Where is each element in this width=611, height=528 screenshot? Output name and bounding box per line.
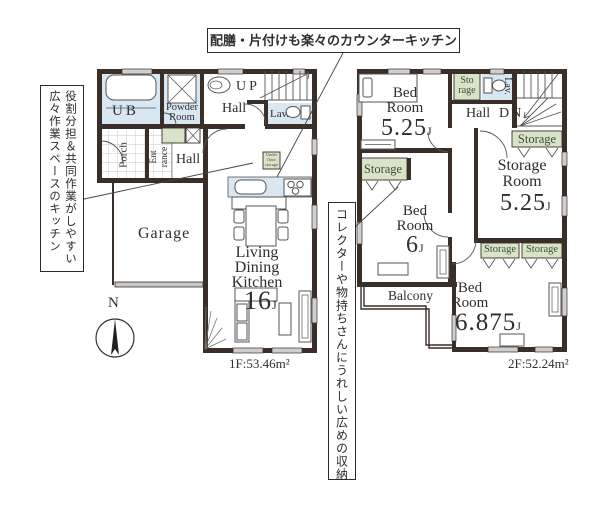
label-up: UP xyxy=(236,80,260,94)
stairs-down xyxy=(517,71,562,126)
callout-counter-kitchen-text: 配膳・片付けも楽々のカウンターキッチン xyxy=(208,29,459,52)
room-label-storageroom-1: Storage xyxy=(498,158,547,174)
room-label-ub: UB xyxy=(112,104,139,119)
compass-icon xyxy=(96,319,134,357)
floor-plan-page: 配膳・片付けも楽々のカウンターキッチン 役割分担＆共同作業がしやすい 広々作業ス… xyxy=(0,0,611,528)
room-size-bed2: 6J xyxy=(406,233,424,257)
callout-storage-note-text: コレクターや物持ちさんにうれしい広めの収納 xyxy=(334,203,351,481)
room-label-bed1-1: Bed xyxy=(393,86,417,101)
kitchen-sink-icon xyxy=(235,180,266,194)
compass-north-label: N xyxy=(108,296,119,311)
closet-icon-6875j xyxy=(549,283,561,316)
room-label-bed3-1: Bed xyxy=(458,281,482,296)
room-label-bed2-1: Bed xyxy=(403,204,427,219)
room-label-porch: Porch xyxy=(119,142,130,168)
callout-kitchen-space: 役割分担＆共同作業がしやすい 広々作業スペースのキッチン xyxy=(40,85,84,272)
room-label-lav-2f: Lav. xyxy=(502,77,512,94)
room-size-storageroom: 5.25J xyxy=(500,191,551,215)
room-label-powder-2: Room xyxy=(169,113,195,124)
washing-machine-icon xyxy=(168,75,196,103)
callout-storage-note: コレクターや物持ちさんにうれしい広めの収納 xyxy=(328,202,356,480)
floor2-area-label: 2F:52.24m² xyxy=(508,357,569,370)
corner-hatch xyxy=(205,307,226,349)
callout-kitchen-space-line2: 広々作業スペースのキッチン xyxy=(46,90,62,273)
room-label-entrance: Ent rance xyxy=(149,147,171,168)
dining-table-icon xyxy=(234,206,288,246)
stairs-up xyxy=(260,71,312,100)
room-label-balcony: Balcony xyxy=(388,289,433,303)
wash-basin-icon xyxy=(208,77,230,93)
room-label-storageroom-2: Room xyxy=(502,174,541,190)
room-label-hall-lower: Hall xyxy=(176,153,200,167)
room-label-lav-1f: Lav. xyxy=(270,109,289,120)
stove-icon xyxy=(284,179,311,196)
callout-kitchen-space-line1: 役割分担＆共同作業がしやすい xyxy=(62,90,78,273)
room-label-bed1-2: Room xyxy=(387,101,424,116)
storage-bottom2-label: Storage xyxy=(526,245,558,256)
bathtub-icon xyxy=(106,75,156,100)
room-size-bed3: 6.875J xyxy=(455,310,521,335)
tv-board-icon xyxy=(299,291,311,342)
storage-left-label: Storage xyxy=(364,163,402,176)
label-dn: DN xyxy=(499,107,523,121)
callout-counter-kitchen: 配膳・片付けも楽々のカウンターキッチン xyxy=(207,28,460,53)
room-label-hall-upper: Hall xyxy=(222,102,246,116)
storage-understairs-label: Storage xyxy=(518,133,556,146)
room-size-bed1: 5.25J xyxy=(381,116,432,140)
shelf-icon xyxy=(361,140,395,149)
storage-small-label-2: rage xyxy=(458,86,475,96)
storage-bottom1-label: Storage xyxy=(484,245,516,256)
room-label-garage: Garage xyxy=(138,226,190,242)
floor1-area-label: 1F:53.46m² xyxy=(229,357,290,370)
shoe-storage-icon xyxy=(162,128,200,143)
side-table-icon xyxy=(279,303,291,335)
room-label-hall-2f: Hall xyxy=(466,107,490,121)
garage-door xyxy=(115,282,203,287)
desk-icon-6j xyxy=(378,263,408,275)
underfloor-storage-label: Under floor storage xyxy=(263,153,280,168)
floor-plan-drawing xyxy=(0,0,611,528)
room-size-ldk: 16J xyxy=(244,288,277,314)
closet-icon-6j xyxy=(437,246,449,278)
